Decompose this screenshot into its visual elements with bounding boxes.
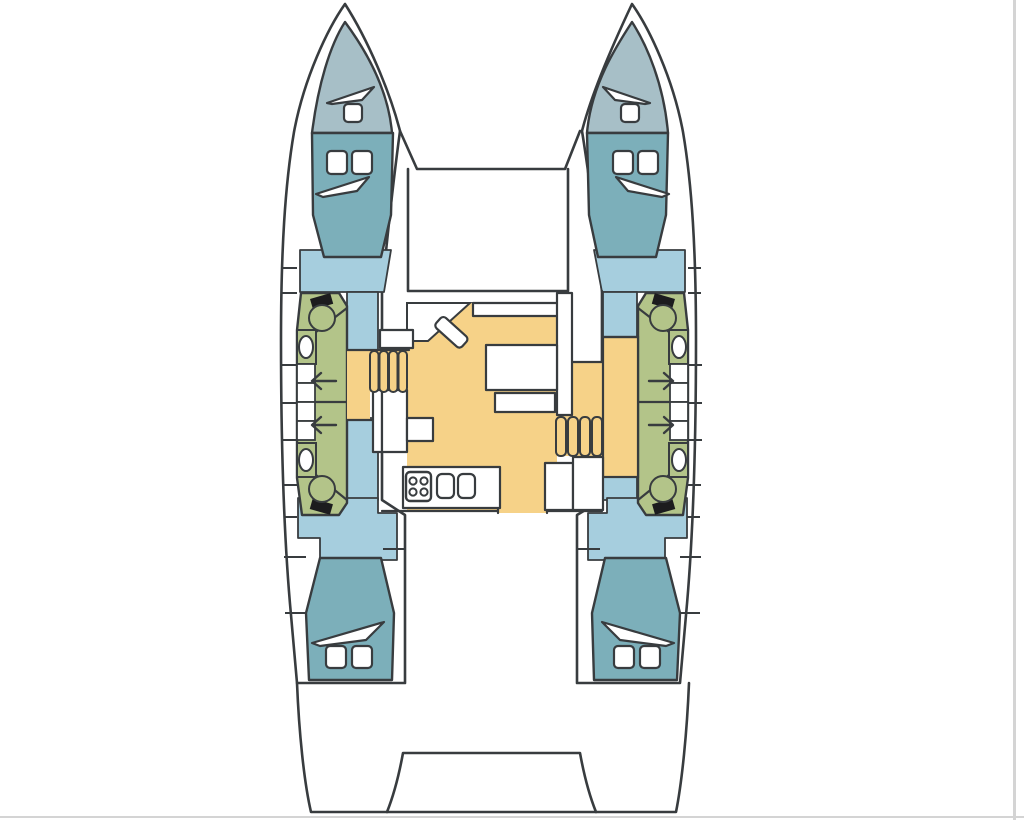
stove-icon — [406, 472, 431, 501]
starboard-step-1 — [556, 417, 566, 456]
bottom-edge-line — [0, 816, 1024, 818]
burner-3-icon — [409, 488, 416, 495]
starboard-fore-toilet-bowl-icon — [650, 305, 676, 331]
foredeck-trapezoid-lines — [400, 131, 580, 169]
sofa-back-bench — [473, 303, 570, 316]
port-step-3 — [389, 351, 398, 392]
nav-desk — [380, 330, 413, 348]
port-galley-return — [407, 418, 433, 441]
starboard-step-4 — [592, 417, 602, 456]
port-aft-cabin-berth — [306, 558, 394, 680]
port-corridor — [347, 350, 370, 420]
cockpit-door-sill — [498, 500, 547, 513]
starboard-fore-washbasin-icon — [672, 336, 686, 358]
starboard-connector — [572, 362, 602, 415]
starboard-walkway-lower — [603, 477, 637, 500]
starboard-shelf-3 — [670, 402, 688, 421]
port-step-1 — [370, 351, 379, 392]
starboard-galley-cabinet — [545, 463, 573, 510]
burner-4-icon — [420, 488, 427, 495]
starboard-aft-cabin-hatch-1 — [614, 646, 634, 668]
port-galley-cabinet — [382, 390, 407, 452]
port-aft-cabin-hatch-2 — [352, 646, 372, 668]
starboard-shelf-2 — [670, 383, 688, 402]
burner-1-icon — [409, 477, 416, 484]
port-shelf-2 — [297, 383, 315, 402]
port-fore-toilet-bowl-icon — [309, 305, 335, 331]
port-walkway-upper — [347, 292, 378, 352]
port-fore-washbasin-icon — [299, 336, 313, 358]
floor-plan-canvas — [0, 0, 1024, 820]
port-step-4 — [399, 351, 408, 392]
sideboard-cabinet — [557, 293, 572, 415]
burner-2-icon — [420, 477, 427, 484]
starboard-forward-cabin-hatch-2 — [638, 151, 658, 174]
galley-appliances — [406, 472, 475, 501]
port-forward-cabin-hatch-1 — [327, 151, 347, 174]
starboard-vestibule — [603, 337, 638, 477]
starboard-walkway-upper — [603, 292, 637, 337]
starboard-aft-cabin-berth — [592, 558, 680, 680]
starboard-aft-cabin-hatch-2 — [640, 646, 660, 668]
starboard-aft-washbasin-icon — [672, 449, 686, 471]
coachroof-side-lines — [408, 169, 568, 291]
stern-outline — [297, 683, 689, 812]
right-edge-line — [1013, 0, 1016, 820]
catamaran-floor-plan — [0, 0, 1024, 820]
starboard-step-2 — [568, 417, 578, 456]
starboard-forepeak-hatch — [621, 104, 639, 122]
sink-basin-left-icon — [437, 474, 454, 498]
aft-platform-steps — [387, 753, 596, 812]
port-step-2 — [380, 351, 389, 392]
port-forward-cabin-hatch-2 — [352, 151, 372, 174]
port-aft-washbasin-icon — [299, 449, 313, 471]
port-aft-cabin-hatch-1 — [326, 646, 346, 668]
side-table — [495, 393, 555, 412]
starboard-aft-toilet-bowl-icon — [650, 476, 676, 502]
port-galley-cabinet-inner — [373, 390, 382, 452]
starboard-forward-cabin-hatch-1 — [613, 151, 633, 174]
sink-basin-right-icon — [458, 474, 475, 498]
port-shelf-3 — [297, 402, 315, 421]
port-aft-toilet-bowl-icon — [309, 476, 335, 502]
port-forepeak-hatch — [344, 104, 362, 122]
starboard-galley-return — [573, 457, 603, 510]
starboard-step-3 — [580, 417, 590, 456]
dining-table — [486, 345, 557, 390]
